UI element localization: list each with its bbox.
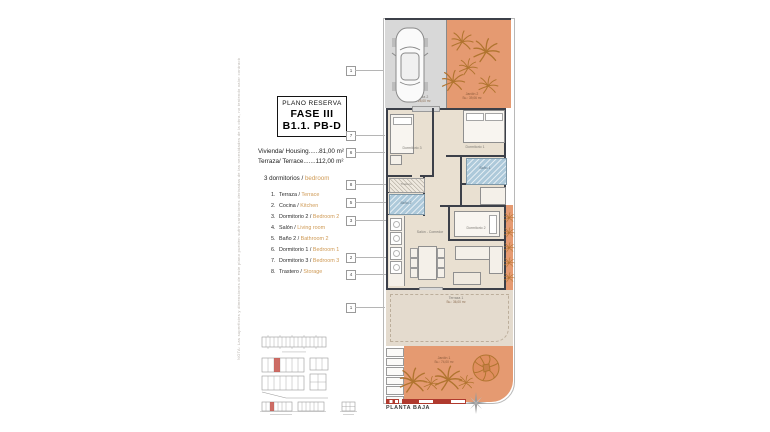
chair [437,258,445,268]
wall [460,156,462,206]
room-label-bedroom1: Dormitorio 1 [452,145,498,149]
step [386,358,404,367]
leader-line [355,152,385,153]
callout-2: 2 [346,253,356,263]
dining-table [418,246,437,280]
terrace-1-label: Terraza 1 Su.: 36,00 m² [436,296,476,304]
callout-3: 3 [346,216,356,226]
wall [446,155,506,157]
legend-item: 5.Baño 2 / Bathroom 2 [271,234,366,245]
bed-bedroom2 [454,211,500,237]
bedrooms-es: 3 dormitorios / [264,175,303,182]
callout-7: 7 [346,131,356,141]
garden-2-label: Jardín 2 Su.: 39,06 m² [452,92,492,100]
terrace-area: Terraza/ Terrace.......112,00 m² [258,158,368,165]
callout-4: 4 [346,270,356,280]
leader-line [355,307,385,308]
plan-kicker: PLANO RESERVA [278,100,346,107]
keyplan-site-strip [262,335,326,352]
pillow [393,117,412,125]
unit-code: B1.1. PB-D [278,120,346,132]
room-label-storage: Trastero [390,182,422,186]
hob-icon [390,232,402,245]
wall [448,239,506,241]
pillow [466,113,484,121]
callout-1-bottom: 1 [346,303,356,313]
highlighted-unit [274,358,280,372]
sink-icon [390,218,402,231]
chair [410,248,418,258]
chair [410,268,418,278]
step [386,348,404,357]
step [386,377,404,386]
wall [448,206,450,241]
coffee-table [453,272,481,285]
parking-garden-divider [446,20,447,108]
wall [440,205,506,207]
plan-sheet: NOTA: Las superficies y dimensiones de e… [0,0,770,432]
chair [410,258,418,268]
room-label-bedroom2: Dormitorio 2 [456,226,496,230]
chair [437,248,445,258]
floor-caption: PLANTA BAJA [386,405,430,411]
pillow [485,113,503,121]
terrace-2-label: Terraza 2 Su.: 25,00 m² [404,95,438,103]
bedrooms-en: bedroom [305,175,329,182]
scale-subbar [386,399,399,404]
bed-bedroom1 [463,110,505,143]
garden-1-area [404,346,513,402]
highlighted-unit [270,402,274,411]
callout-1-top: 1 [346,66,356,76]
boundary-wall [385,18,511,20]
bathroom-1 [466,158,507,185]
disclaimer-text: NOTA: Las superficies y dimensiones de e… [236,58,241,360]
leader-line [355,135,385,136]
step [386,386,404,395]
garden-1-label: Jardín 1 Su.: 74,00 m² [424,356,464,364]
callout-6: 6 [346,148,356,158]
wc-fixture [480,187,506,205]
room-label-bathroom2: Baño 2 [390,201,422,205]
keyplan-side-elevation [340,402,357,415]
keyplan-block-plan [262,358,328,398]
patio-door [412,106,440,112]
wall [432,108,434,177]
scale-bar [402,399,466,403]
room-label-bedroom3: Dormitorio 3 [394,146,430,150]
garden-side-strip [506,205,513,292]
kitchen-counter [389,216,405,286]
oven-icon [390,247,402,260]
pillow [489,215,497,234]
callout-8: 8 [346,180,356,190]
wall [388,175,412,177]
title-box: PLANO RESERVA FASE III B1.1. PB-D [277,96,347,137]
callout-5: 5 [346,198,356,208]
fridge-icon [390,261,402,274]
bedrooms-count: 3 dormitorios / bedroom [264,175,329,182]
keyplan-elevations [260,402,326,415]
room-label-living: Salón - Comedor [406,230,454,234]
room-label-bathroom1: Baño 1 [468,166,502,170]
chair [437,268,445,278]
sofa-chaise [489,246,503,274]
leader-line [355,70,384,71]
steps [386,348,404,400]
step [386,367,404,376]
nightstand [390,155,402,165]
phase-title: FASE III [278,108,346,120]
